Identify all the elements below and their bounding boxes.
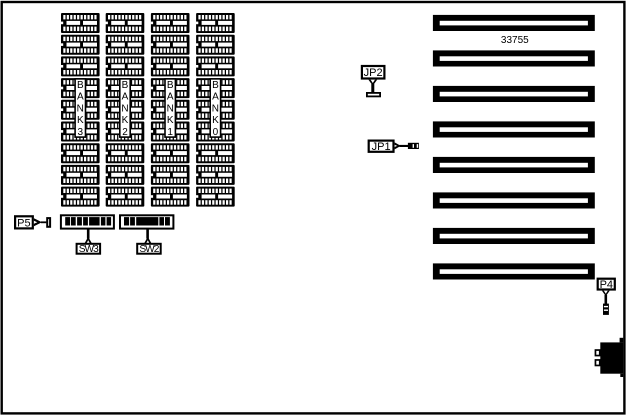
svg-text:SW3: SW3 (79, 244, 99, 255)
svg-text:P4: P4 (600, 279, 613, 291)
svg-text:0: 0 (213, 127, 219, 138)
svg-text:K: K (167, 115, 174, 126)
svg-text:3: 3 (78, 127, 84, 138)
svg-text:2: 2 (122, 127, 128, 138)
svg-text:A: A (77, 92, 84, 103)
svg-text:K: K (77, 115, 84, 126)
svg-text:B: B (167, 80, 174, 91)
svg-text:B: B (77, 80, 84, 91)
svg-text:1: 1 (167, 127, 173, 138)
svg-text:N: N (212, 103, 219, 114)
svg-text:33755: 33755 (501, 35, 529, 46)
svg-text:SW2: SW2 (139, 244, 159, 255)
svg-text:A: A (167, 92, 174, 103)
svg-text:B: B (122, 80, 129, 91)
svg-text:N: N (167, 103, 174, 114)
svg-text:K: K (212, 115, 219, 126)
svg-text:B: B (212, 80, 219, 91)
svg-text:JP2: JP2 (364, 67, 383, 79)
svg-text:K: K (122, 115, 129, 126)
svg-text:P5: P5 (17, 217, 30, 229)
svg-text:A: A (212, 92, 219, 103)
svg-text:A: A (122, 92, 129, 103)
svg-text:N: N (121, 103, 128, 114)
svg-text:N: N (77, 103, 84, 114)
svg-text:JP1: JP1 (372, 141, 391, 153)
